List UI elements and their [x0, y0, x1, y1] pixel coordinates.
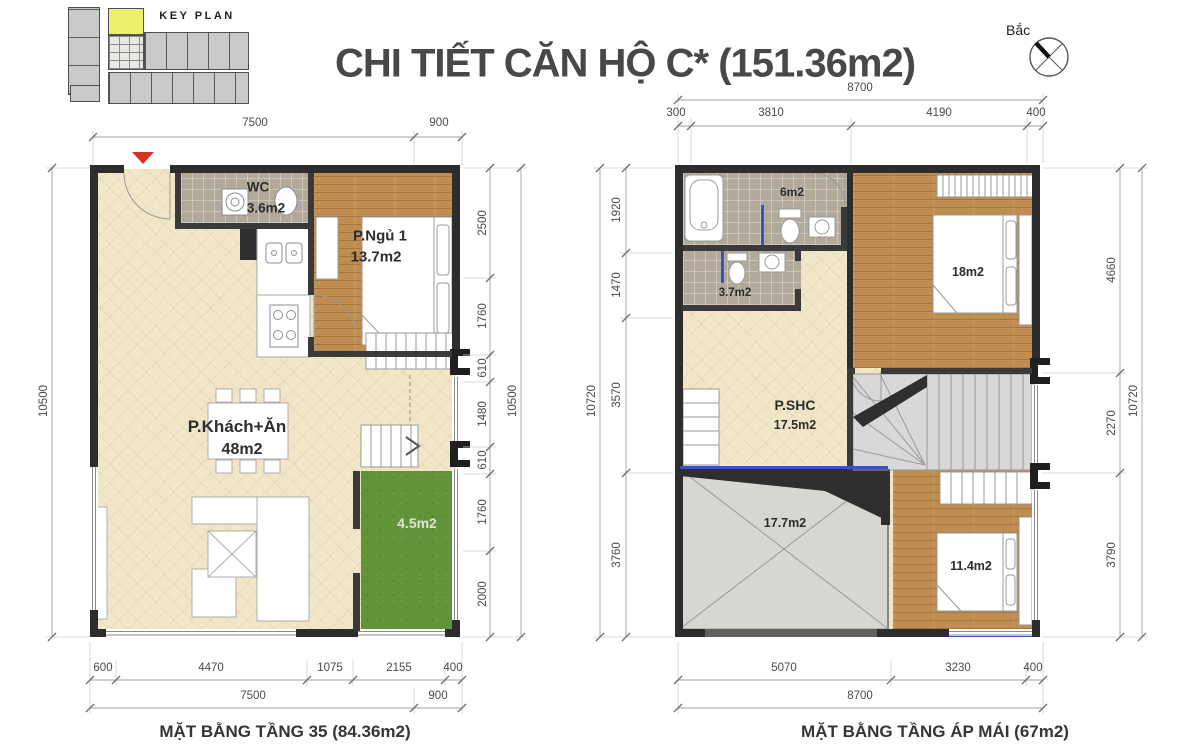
dim-label: 4660	[1106, 257, 1118, 283]
dim-label: 610	[477, 450, 489, 469]
dim-label: 5070	[771, 662, 797, 674]
dim-label: 400	[1023, 662, 1042, 674]
floor-plan-sheet: CHI TIẾT CĂN HỘ C* (151.36m2) KEY PLAN B…	[0, 0, 1200, 750]
dim-label: 8700	[847, 690, 873, 702]
dim-label: 900	[428, 690, 447, 702]
dim-label: 3810	[758, 107, 784, 119]
dim-label: 1920	[611, 197, 623, 223]
dim-label: 400	[443, 662, 462, 674]
dim-label: 400	[1026, 107, 1045, 119]
dim-label: 2270	[1106, 410, 1118, 436]
dim-label: 610	[477, 358, 489, 377]
north-arrow-icon	[1020, 30, 1080, 90]
page-title: CHI TIẾT CĂN HỘ C* (151.36m2)	[335, 42, 915, 87]
dim-label: 900	[429, 117, 448, 129]
plan-caption-attic: MẶT BẰNG TẦNG ÁP MÁI (67m2)	[801, 722, 1069, 742]
dim-label: 7500	[242, 117, 268, 129]
dim-label: 3760	[611, 542, 623, 568]
dim-label: 1760	[477, 499, 489, 525]
dim-label: 600	[93, 662, 112, 674]
entry-marker-icon	[132, 152, 154, 164]
dim-label: 3790	[1106, 542, 1118, 568]
dim-label: 10720	[1128, 385, 1140, 417]
dimension-lines	[0, 0, 1200, 750]
plan-caption-floor35: MẶT BẰNG TẦNG 35 (84.36m2)	[159, 722, 410, 742]
dim-label: 10500	[507, 385, 519, 417]
dim-label: 4190	[926, 107, 952, 119]
dim-label: 300	[666, 107, 685, 119]
dim-label: 1760	[477, 303, 489, 329]
dim-label: 1075	[317, 662, 343, 674]
dim-label: 1480	[477, 401, 489, 427]
dim-label: 1470	[611, 272, 623, 298]
dim-label: 2000	[477, 581, 489, 607]
dim-label: 10500	[38, 385, 50, 417]
dim-label: 3230	[945, 662, 971, 674]
dim-label: 4470	[198, 662, 224, 674]
dim-label: 2500	[477, 210, 489, 236]
dim-label: 2155	[386, 662, 412, 674]
dim-label: 10720	[586, 385, 598, 417]
dim-label: 7500	[240, 690, 266, 702]
dim-label: 3570	[611, 382, 623, 408]
